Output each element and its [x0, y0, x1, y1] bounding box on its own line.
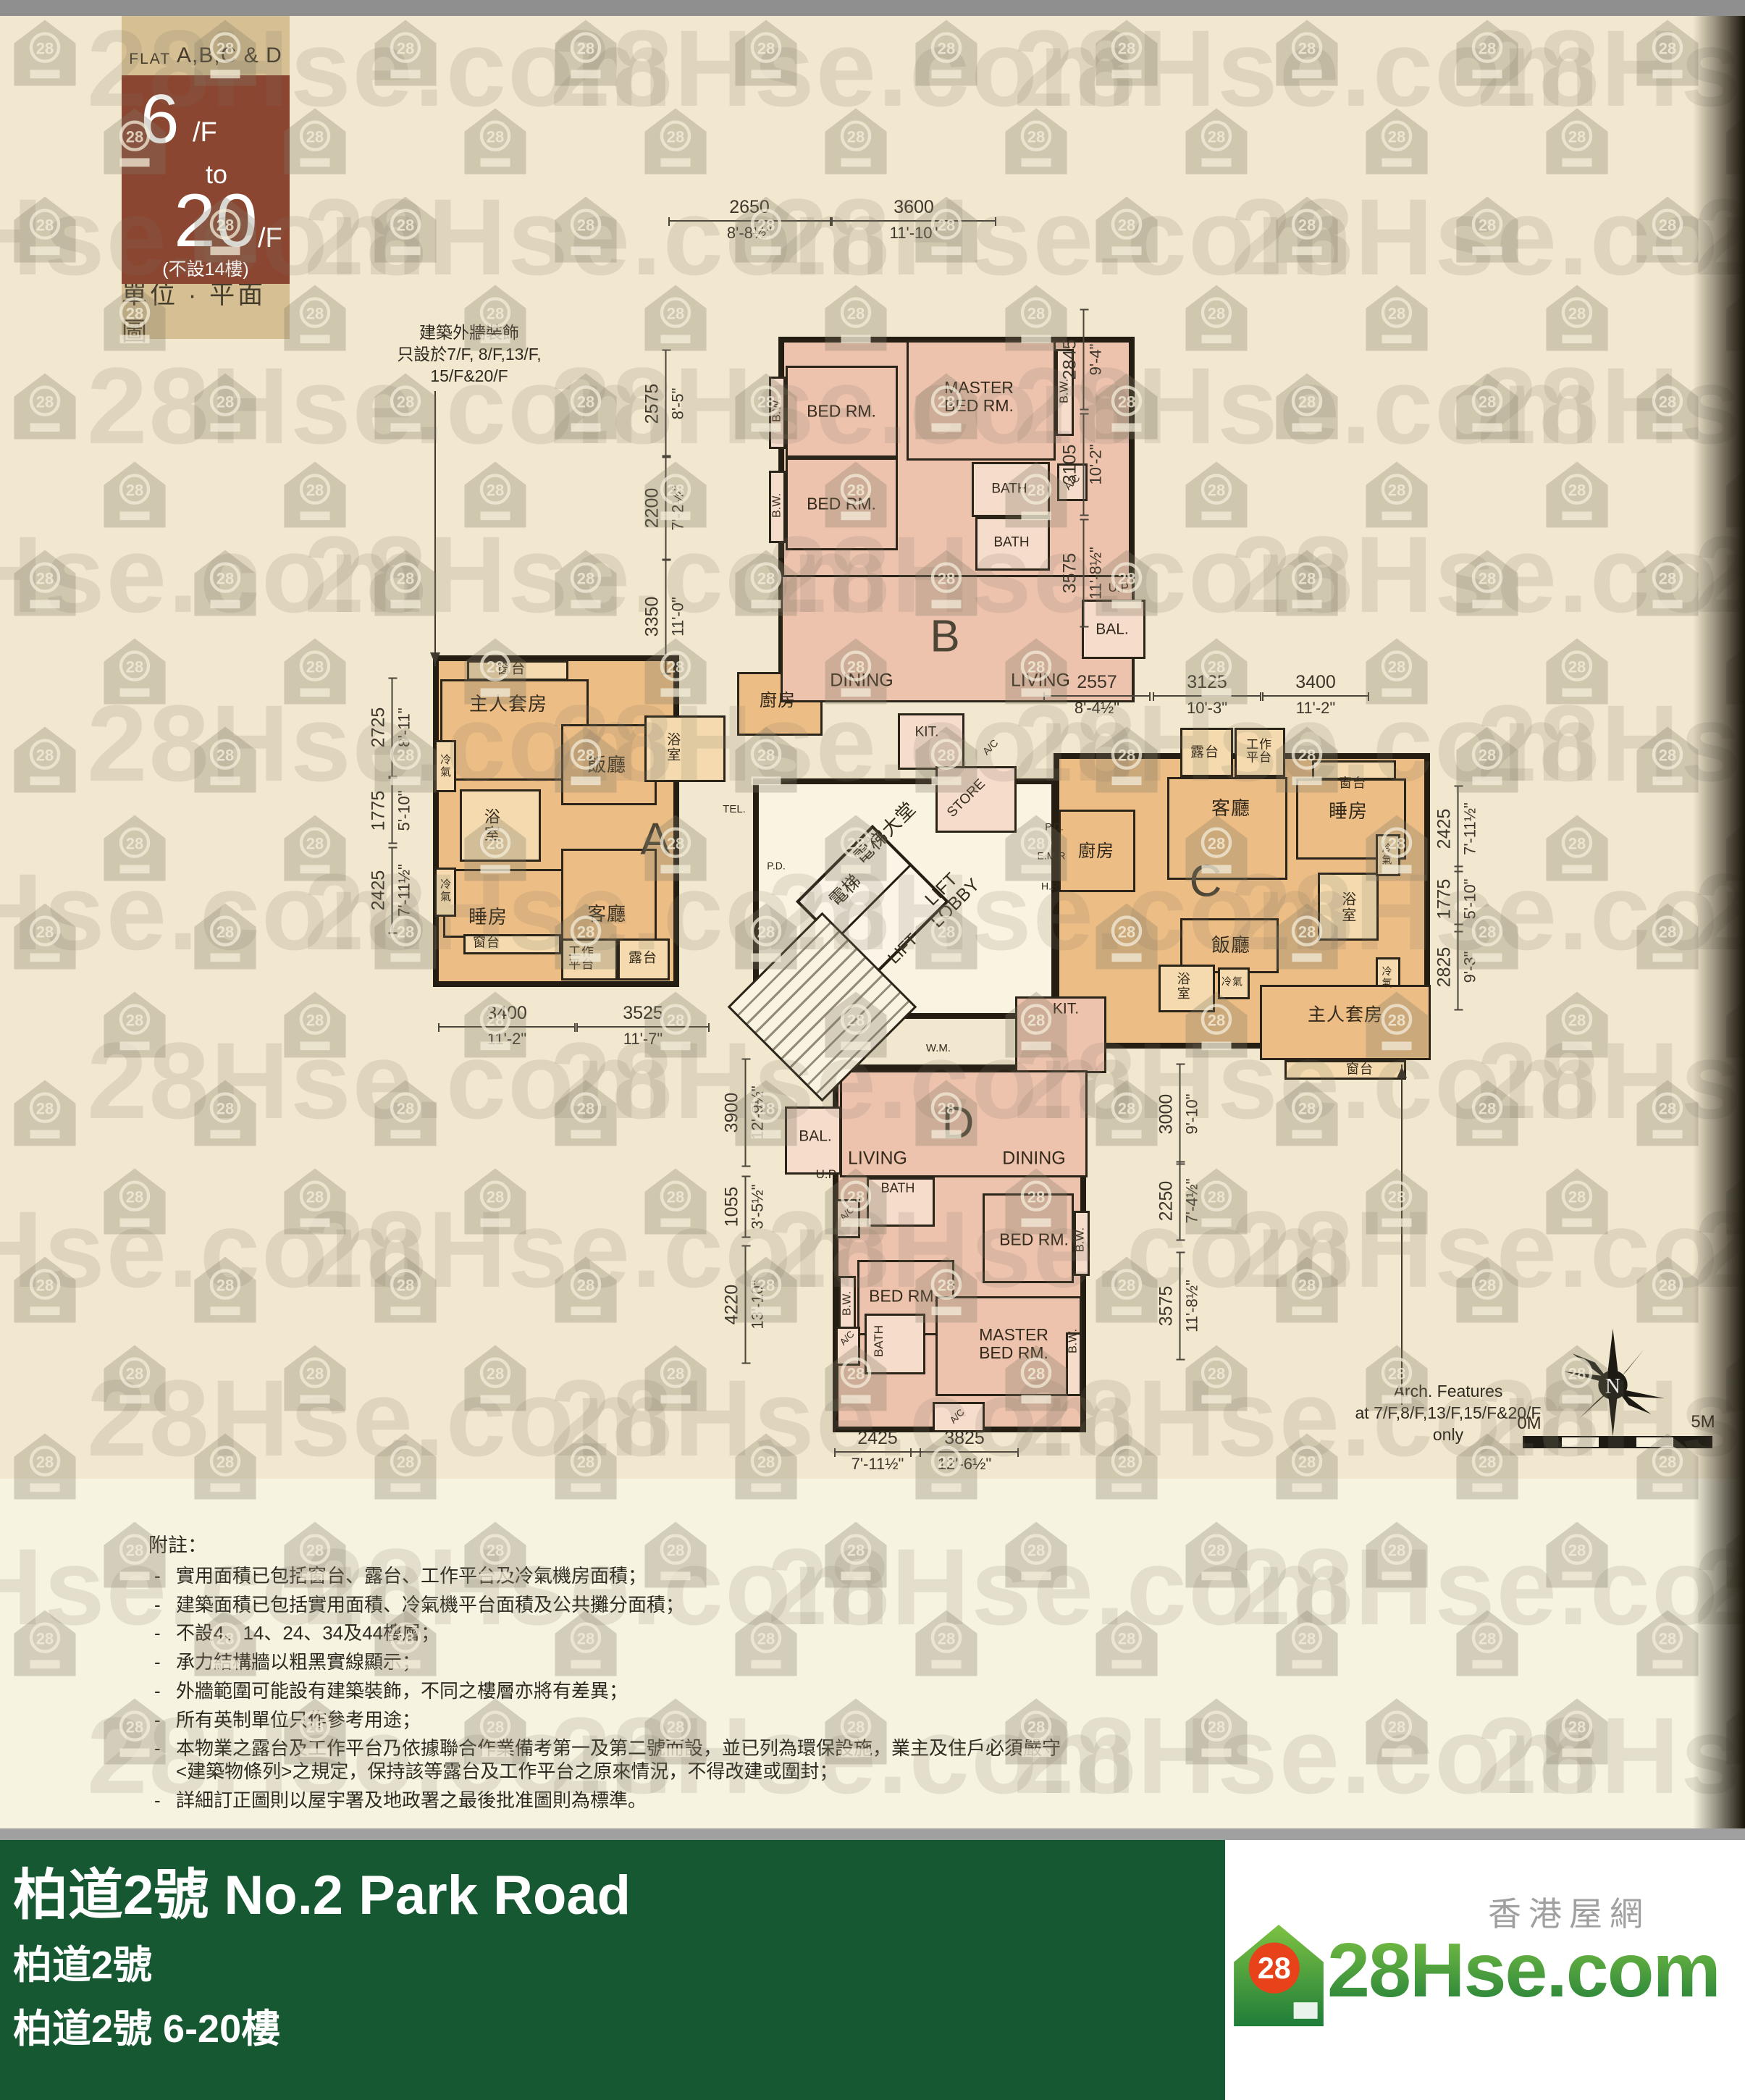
room-label: 浴室: [482, 808, 500, 843]
room: [1167, 777, 1287, 880]
flat-letter: D: [942, 1100, 976, 1148]
dimension-mm: 2425: [369, 847, 390, 934]
dimension-mm: 3575: [1060, 519, 1081, 628]
dimension-label: 17755'-10": [369, 778, 414, 844]
dimension-mm: 3525: [576, 1003, 710, 1024]
dimension-ft: 7'-11½": [395, 847, 414, 934]
room-label: 廚房: [1078, 842, 1114, 861]
room-label: 窗台: [473, 936, 500, 949]
dimension-line: [1083, 309, 1085, 411]
dimension-line: [745, 1176, 747, 1238]
dimension-ft: 8'-5": [669, 350, 688, 458]
room-label: 露台: [628, 952, 657, 967]
room-label: KIT.: [1053, 1001, 1079, 1018]
dimension-line: [438, 1026, 576, 1028]
dimension-label: 24257'-11½": [1434, 786, 1480, 873]
dimension-mm: 3125: [1153, 672, 1261, 693]
room: [898, 713, 964, 770]
room-label: 窗台: [1346, 1062, 1374, 1076]
room-label: DINING: [830, 671, 893, 691]
dimension-label: 24257'-11½": [369, 847, 414, 934]
annotation: Arch. Features at 7/F,8/F,13/F,15/F&20/F…: [1355, 1381, 1542, 1446]
room-label: LIVING: [848, 1149, 907, 1169]
dimension-mm: 3900: [722, 1059, 743, 1167]
dimension-ft: 8'-11": [395, 678, 414, 778]
site-name: 28Hse.com: [1327, 1927, 1720, 2015]
dimension-mm: 1775: [1434, 866, 1455, 933]
room-label: MASTER BED RM.: [979, 1326, 1048, 1362]
dimension-ft: 5'-10": [1461, 866, 1480, 933]
room-label: BAL.: [799, 1129, 832, 1146]
dimension-line: [1458, 924, 1459, 1011]
room: [1284, 1060, 1406, 1080]
dimension-mm: 3400: [438, 1003, 576, 1024]
room-label: 露台: [1190, 746, 1219, 761]
leader-arrow: [434, 391, 436, 666]
room-label: W.M.: [926, 1043, 951, 1054]
dimension-ft: 13'-10": [749, 1246, 768, 1364]
dimension-ft: 7'-11½": [834, 1455, 921, 1474]
room-label: BED RM.: [807, 495, 876, 513]
dimension-line: [834, 1451, 921, 1453]
note-item: 本物業之露台及工作平台乃依據聯合作業備考第一及第二號而設，並已列為環保設施，業主…: [148, 1737, 1068, 1783]
annotation: 建築外牆裝飾 只設於7/F, 8/F,13/F, 15/F&20/F: [397, 322, 541, 387]
note-item: 建築面積已包括實用面積、冷氣機平台面積及公共攤分面積；: [148, 1594, 1068, 1617]
dimension-mm: 3575: [1156, 1252, 1177, 1361]
dimension-line: [745, 1059, 747, 1167]
room-label: BATH: [991, 482, 1027, 497]
notes-heading: 附註：: [148, 1529, 1068, 1558]
dimension-label: 352511'-7": [576, 1003, 710, 1049]
room-label: U.P.: [816, 1168, 838, 1181]
dimension-ft: 11'-2": [438, 1030, 576, 1049]
dimension-label: 382512'-6½": [910, 1428, 1019, 1474]
dimension-line: [392, 778, 393, 844]
dimension-mm: 2845: [1060, 309, 1081, 411]
dimension-mm: 3825: [910, 1428, 1019, 1449]
room-label: 客廳: [1211, 798, 1250, 818]
floor-to-suffix: /F: [258, 223, 282, 254]
dimension-mm: 2575: [642, 350, 663, 458]
house-28-icon: 28: [1231, 1921, 1326, 2030]
dimension-ft: 10'-2": [1087, 413, 1106, 516]
dimension-line: [576, 1026, 710, 1028]
dimension-line: [1458, 866, 1459, 933]
dimension-ft: 11'-8½": [1183, 1252, 1202, 1361]
dimension-mm: 2425: [1434, 786, 1455, 873]
estate-name-cn: 柏道2號: [13, 1933, 152, 1990]
dimension-mm: 2825: [1434, 924, 1455, 1011]
flat-letter: B: [930, 613, 961, 662]
room-label: 工作 平台: [568, 946, 594, 973]
dimension-mm: 2250: [1156, 1162, 1177, 1241]
room-label: 飯廳: [1211, 935, 1250, 955]
dimension-ft: 9'-3": [1461, 924, 1480, 1011]
dimension-label: 22007'-2½": [642, 455, 688, 561]
top-border-strip: [0, 0, 1745, 16]
dimension-line: [392, 847, 393, 934]
room-label: 工作 平台: [1246, 739, 1272, 765]
estate-name-banner: 柏道2號 No.2 Park Road 柏道2號 柏道2號 6-20樓: [0, 1840, 1225, 2100]
dimension-mm: 3105: [1060, 413, 1081, 516]
dimension-mm: 1775: [369, 778, 390, 844]
site-logo: 香港屋網 28 28Hse.com: [1227, 1840, 1745, 2100]
dimension-line: [1083, 413, 1085, 516]
note-item: 不設4、14、24、34及44樓層；: [148, 1622, 1068, 1645]
dimension-label: 22507'-4½": [1156, 1162, 1202, 1241]
room-label: 窗台: [497, 663, 526, 678]
dimension-ft: 12'-6½": [910, 1455, 1019, 1474]
dimension-label: 10553'-5½": [722, 1176, 768, 1238]
dimension-label: 335011'-0": [642, 559, 688, 675]
dimension-line: [831, 220, 996, 222]
banner-divider-strip: [0, 1828, 1745, 1840]
room-label: DINING: [1002, 1149, 1066, 1169]
room-label: B.W.: [770, 398, 783, 422]
estate-title: 柏道2號 No.2 Park Road: [13, 1850, 631, 1930]
dimension-label: 390012'-9½": [722, 1059, 768, 1167]
room-label: B.W.: [841, 1291, 853, 1316]
notes-section: 附註： 實用面積已包括窗台、露台、工作平台及冷氣機房面積；建築面積已包括實用面積…: [148, 1529, 1068, 1818]
dimension-line: [665, 455, 667, 561]
notes-list: 實用面積已包括窗台、露台、工作平台及冷氣機房面積；建築面積已包括實用面積、冷氣機…: [148, 1565, 1068, 1812]
room-label: E.M.R: [1038, 850, 1066, 861]
dimension-line: [910, 1451, 1019, 1453]
dimension-mm: 3000: [1156, 1064, 1177, 1165]
floor-note: (不設14樓): [122, 255, 290, 281]
room-label: BED RM.: [807, 403, 876, 421]
room-label: 主人套房: [1308, 1006, 1383, 1025]
estate-floor-range: 柏道2號 6-20樓: [13, 1996, 280, 2054]
dimension-ft: 11'-10": [831, 224, 996, 243]
dimension-label: 24257'-11½": [834, 1428, 921, 1474]
dimension-label: 312510'-3": [1153, 672, 1261, 718]
dimension-mm: 3600: [831, 197, 996, 218]
dimension-line: [1262, 695, 1369, 697]
dimension-label: 340011'-2": [1262, 672, 1369, 718]
room-label: BED RM.: [869, 1288, 938, 1306]
floor-to: 20: [174, 178, 258, 264]
dimension-label: 28459'-4": [1060, 309, 1106, 411]
dimension-line: [1043, 695, 1151, 697]
dimension-mm: 2650: [668, 197, 831, 218]
dimension-ft: 8'-4½": [1043, 699, 1151, 718]
dimension-label: 25578'-4½": [1043, 672, 1151, 718]
dimension-ft: 7'-11½": [1461, 786, 1480, 873]
dimension-label: 28259'-3": [1434, 924, 1480, 1011]
dimension-ft: 11'-2": [1262, 699, 1369, 718]
room-label: B.W.: [1067, 1329, 1079, 1353]
flats-label: A,B,C & D: [177, 43, 282, 68]
dimension-ft: 11'-8½": [1087, 519, 1106, 628]
flats-heading: FLAT A,B,C & D: [122, 16, 290, 75]
dimension-line: [1180, 1064, 1181, 1165]
bottom-banner: 柏道2號 No.2 Park Road 柏道2號 柏道2號 6-20樓 香港屋網…: [0, 1840, 1745, 2100]
dimension-line: [665, 559, 667, 675]
room-label: BATH: [993, 536, 1029, 551]
dimension-label: 357511'-8½": [1060, 519, 1106, 628]
note-item: 外牆範圍可能設有建築裝飾，不同之樓層亦將有差異；: [148, 1680, 1068, 1703]
flat-letter: A: [640, 816, 671, 865]
dimension-ft: 12'-9½": [749, 1059, 768, 1167]
dimension-label: 357511'-8½": [1156, 1252, 1202, 1361]
dimension-ft: 11'-0": [669, 559, 688, 675]
room-label: 飯廳: [587, 755, 626, 775]
dimension-label: 310510'-2": [1060, 413, 1106, 516]
dimension-label: 360011'-10": [831, 197, 996, 243]
room-label: 冷氣: [1381, 966, 1392, 989]
dimension-ft: 5'-10": [395, 778, 414, 844]
room-label: H.R.: [1041, 881, 1061, 891]
dimension-line: [392, 678, 393, 778]
note-item: 承力結構牆以粗黑實線顯示；: [148, 1651, 1068, 1674]
dimension-ft: 9'-10": [1183, 1064, 1202, 1165]
dimension-label: 17755'-10": [1434, 866, 1480, 933]
note-item: 所有英制單位只作參考用途；: [148, 1709, 1068, 1732]
room-label: 睡房: [1329, 801, 1368, 821]
dimension-mm: 2725: [369, 678, 390, 778]
flats-label-prefix: FLAT: [129, 51, 171, 68]
room-label: 冷氣: [439, 878, 450, 903]
room-label: U.P.: [1109, 581, 1131, 595]
room-label: BATH: [881, 1181, 915, 1195]
room-label: P.D.: [1045, 821, 1063, 832]
floor-from: 6: [140, 80, 179, 159]
dimension-line: [1458, 786, 1459, 873]
dimension-line: [745, 1246, 747, 1364]
dimension-label: 25758'-5": [642, 350, 688, 458]
dimension-ft: 9'-4": [1087, 309, 1106, 411]
dimension-line: [1083, 519, 1085, 628]
dimension-ft: 7'-2½": [669, 455, 688, 561]
dimension-line: [665, 350, 667, 458]
room-label: 冷氣: [439, 754, 450, 778]
dimension-mm: 3350: [642, 559, 663, 675]
scale-segment: [1599, 1437, 1636, 1447]
scale-segment: [1562, 1437, 1599, 1447]
room-label: 睡房: [468, 907, 508, 927]
dimension-label: 30009'-10": [1156, 1064, 1202, 1165]
logo-number: 28: [1258, 1952, 1291, 1985]
room-label: BED RM.: [999, 1231, 1069, 1249]
flat-letter: C: [1190, 858, 1224, 907]
dimension-ft: 8'-8½": [668, 224, 831, 243]
scale-bar: [1523, 1436, 1712, 1448]
floor-plan-page: N BED RM.B.W.BED RM.B.W.MASTER BED RM.B.…: [0, 0, 1745, 2100]
dimension-mm: 4220: [722, 1246, 743, 1364]
dimension-ft: 11'-7": [576, 1030, 710, 1049]
room-label: 窗台: [1339, 776, 1366, 790]
room-label: 冷氣: [1221, 976, 1243, 987]
dimension-mm: 2200: [642, 455, 663, 561]
dimension-label: 26508'-8½": [668, 197, 831, 243]
dimension-line: [1180, 1252, 1181, 1361]
plan-subtitle: 單位 · 平面圖: [122, 284, 290, 339]
dimension-ft: 10'-3": [1153, 699, 1261, 718]
room-label: KIT.: [915, 726, 939, 741]
room-label: B.W.: [1074, 1227, 1086, 1252]
room-label: BATH: [872, 1325, 886, 1357]
dimension-mm: 2557: [1043, 672, 1151, 693]
dimension-mm: 2425: [834, 1428, 921, 1449]
dimension-ft: 3'-5½": [749, 1176, 768, 1238]
note-item: 詳細訂正圖則以屋宇署及地政署之最後批准圖則為標準。: [148, 1789, 1068, 1813]
dimension-mm: 1055: [722, 1176, 743, 1238]
dimension-label: 340011'-2": [438, 1003, 576, 1049]
floor-range: 6 /F to 20 /F (不設14樓): [122, 75, 290, 284]
scale-segment: [1636, 1437, 1674, 1447]
dimension-line: [1180, 1162, 1181, 1241]
dimension-line: [668, 220, 831, 222]
dimension-label: 422013'-10": [722, 1246, 768, 1364]
room-label: A/C: [980, 737, 1000, 757]
compass-north-icon: N: [1557, 1329, 1669, 1441]
floor-from-suffix: /F: [193, 117, 217, 148]
note-item: 實用面積已包括窗台、露台、工作平台及冷氣機房面積；: [148, 1565, 1068, 1588]
room-label: P.D.: [767, 860, 785, 871]
room: [644, 715, 726, 782]
room-label: 浴室: [1175, 972, 1189, 1001]
room-label: TEL.: [723, 804, 746, 815]
room: [460, 789, 541, 862]
compass-n-label: N: [1605, 1374, 1620, 1398]
room-label: MASTER BED RM.: [944, 379, 1014, 415]
room-label: 浴室: [665, 732, 680, 763]
page-edge-shadow: [1693, 16, 1745, 1828]
room-label: 0M: [1517, 1414, 1541, 1433]
room-label: 客廳: [587, 904, 626, 924]
dimension-mm: 3400: [1262, 672, 1369, 693]
room-label: 浴室: [1339, 891, 1355, 923]
dimension-line: [1153, 695, 1261, 697]
room-label: B.W.: [770, 493, 783, 518]
leader-arrow: [1401, 1064, 1403, 1405]
room-label: 主人套房: [469, 694, 547, 714]
dimension-label: 27258'-11": [369, 678, 414, 778]
room-label: 冷氣: [1381, 843, 1392, 866]
dimension-ft: 7'-4½": [1183, 1162, 1202, 1241]
title-box: FLAT A,B,C & D 6 /F to 20 /F (不設14樓) 單位 …: [122, 16, 290, 339]
room-label: 廚房: [760, 692, 796, 710]
